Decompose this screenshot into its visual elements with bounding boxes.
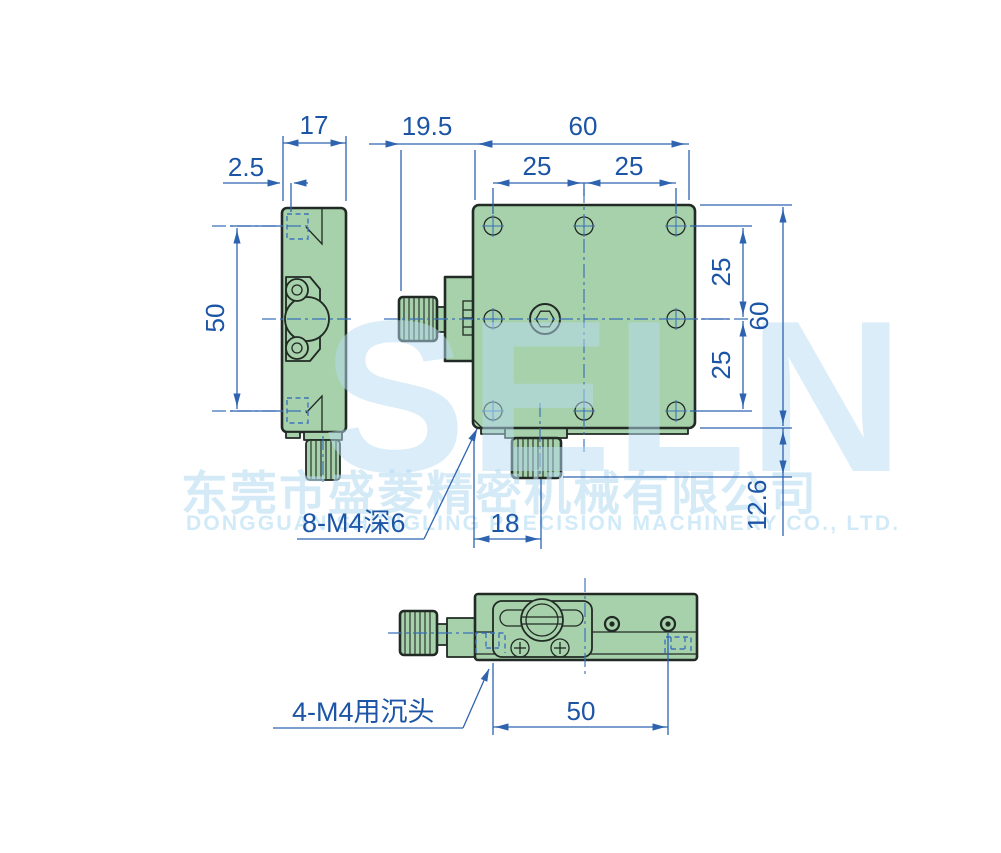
front-plate (473, 205, 695, 428)
bv-carriage-plate (493, 601, 592, 657)
dim-text: 25 (523, 151, 552, 181)
watermark-logo: SELN (322, 272, 906, 521)
side-counterbore-hidden-top (287, 214, 308, 239)
dim-text: 60 (744, 302, 774, 331)
bv-dowel-hole (661, 617, 675, 631)
bv-knob-shaft (437, 624, 447, 645)
cam-small-circle-top (286, 279, 308, 301)
dim-text: 17 (300, 110, 329, 140)
side-body (282, 208, 346, 432)
dim-right-pitch-upper: 25 (690, 226, 752, 319)
dim-text: 2.5 (228, 152, 264, 182)
front-knob-knurling (404, 298, 433, 340)
bv-mount-block (447, 618, 475, 657)
dim-bottom-knob-height: 12.6 (563, 428, 792, 536)
annotation-text: 8-M4深6 (302, 508, 406, 538)
front-bottom-lip (481, 428, 688, 434)
cam-small-circle-bottom (286, 337, 308, 359)
dim-text: 12.6 (742, 480, 772, 531)
front-view (384, 189, 748, 478)
bv-dowel-hole (605, 617, 619, 631)
dim-text: 25 (706, 258, 736, 287)
cam-small-circle-bottom-inner (292, 343, 302, 353)
cam-small-circle-top-inner (292, 285, 302, 295)
side-knob (306, 440, 340, 480)
hole (482, 215, 504, 237)
dovetail-notch-top (306, 209, 322, 244)
front-knob (399, 297, 437, 341)
hole (573, 400, 595, 422)
drawing-canvas: SELN 东莞市盛菱精密机械有限公司 DONGGUAN SHENGLING PR… (0, 0, 1001, 853)
dim-text: 18 (491, 508, 520, 538)
front-block-detail (463, 301, 474, 335)
bv-counterbore-hidden (665, 637, 691, 653)
side-view (212, 208, 352, 486)
bv-knob-knurling (405, 612, 430, 654)
dim-side-hole-span: 50 (200, 226, 280, 411)
bottom-knob-knurling (518, 439, 553, 477)
side-knob-knurling (311, 441, 336, 479)
dimension-layer: 17 2.5 50 19.5 (0, 0, 1001, 853)
hex-socket-screw (530, 304, 560, 334)
watermark: SELN 东莞市盛菱精密机械有限公司 DONGGUAN SHENGLING PR… (0, 0, 1001, 853)
dim-body-width: 60 (475, 111, 689, 200)
dim-text: 25 (706, 351, 736, 380)
part-geometry-layer (0, 0, 1001, 853)
hole (482, 308, 504, 330)
watermark-company-english: DONGGUAN SHENGLING PRECISION MACHINERY C… (186, 512, 900, 536)
annotation-bottom-counterbore: 4-M4用沉头 (273, 669, 489, 728)
dim-text: 60 (569, 111, 598, 141)
bv-counterbore-hidden (476, 633, 505, 653)
bottom-view (388, 578, 697, 674)
dim-side-width: 17 (283, 110, 346, 201)
hole (665, 400, 687, 422)
dim-hole-pitch-top: 25 25 (493, 151, 676, 214)
dim-text: 50 (567, 696, 596, 726)
bv-slotted-screw (521, 599, 563, 641)
front-side-block (445, 277, 474, 361)
bv-knob (400, 611, 437, 655)
bottom-knob-flange (505, 428, 567, 438)
dim-right-pitch-lower: 25 (690, 321, 752, 411)
dim-side-counterbore-offset: 2.5 (223, 152, 308, 212)
dim-bottom-hole-span: 50 (493, 633, 668, 735)
cam-plate (286, 277, 320, 361)
corner-chamfer (473, 419, 482, 428)
bv-slot (500, 610, 583, 626)
dim-knob-length: 19.5 (369, 111, 491, 291)
dovetail-notch-bottom (306, 396, 322, 431)
bv-phillips-screw (551, 639, 569, 657)
hole (482, 400, 504, 422)
dim-body-height: 60 (700, 205, 792, 428)
hole (665, 215, 687, 237)
side-foot-tab (286, 432, 300, 438)
side-counterbore-hidden-bottom (287, 398, 308, 423)
hole (573, 215, 595, 237)
bv-body (475, 594, 697, 660)
dim-text: 25 (615, 151, 644, 181)
bv-phillips-screw (511, 639, 529, 657)
dim-text: 19.5 (402, 111, 453, 141)
dim-screw-offset: 18 (474, 434, 541, 549)
bottom-knob (512, 438, 561, 478)
hole (665, 308, 687, 330)
cam-large-circle (285, 297, 329, 341)
dim-text: 50 (200, 304, 230, 333)
watermark-company-chinese: 东莞市盛菱精密机械有限公司 (181, 455, 818, 524)
annotation-text: 4-M4用沉头 (292, 697, 435, 727)
front-knob-shaft (436, 307, 446, 332)
side-knob-flange (304, 432, 342, 440)
annotation-top-thread: 8-M4深6 (297, 429, 477, 539)
mounting-holes (482, 215, 687, 422)
